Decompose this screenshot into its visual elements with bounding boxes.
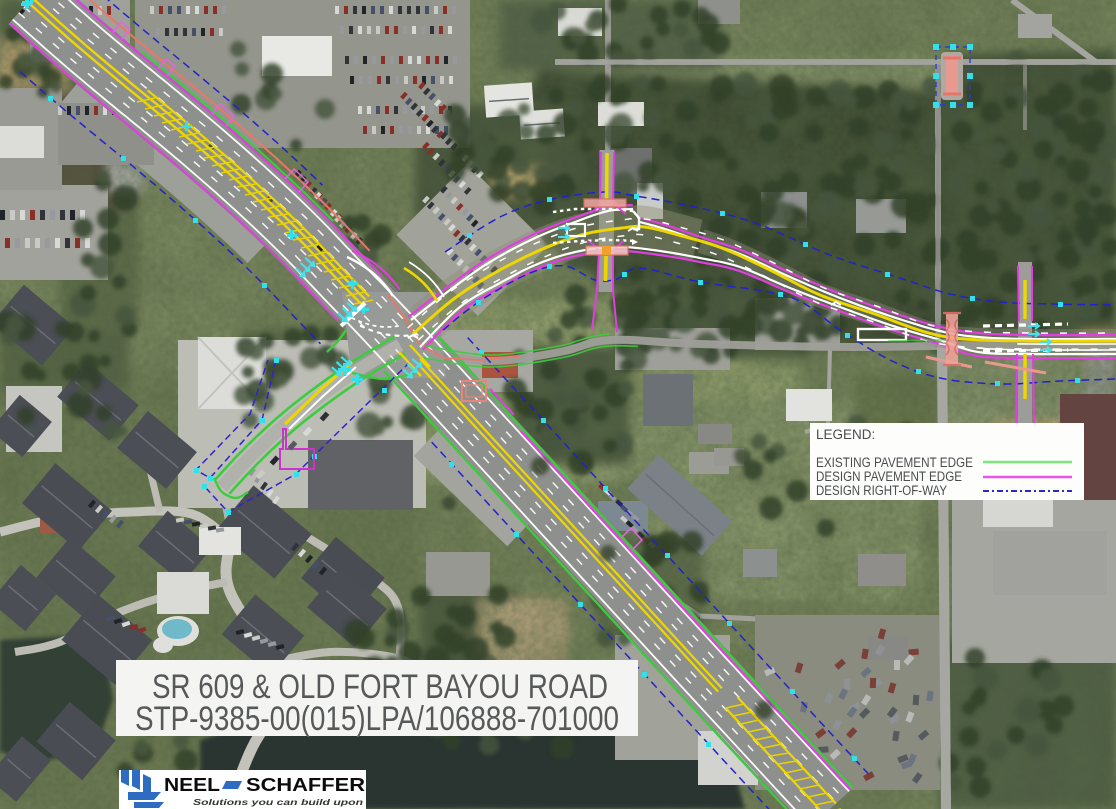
svg-text:NEEL: NEEL [164, 774, 220, 795]
svg-text:STP-9385-00(015)LPA/106888-701: STP-9385-00(015)LPA/106888-701000 [135, 700, 619, 738]
svg-text:DESIGN RIGHT-OF-WAY: DESIGN RIGHT-OF-WAY [816, 483, 947, 498]
svg-text:DESIGN PAVEMENT EDGE: DESIGN PAVEMENT EDGE [816, 469, 962, 484]
svg-text:SCHAFFER: SCHAFFER [246, 774, 365, 795]
svg-text:LEGEND:: LEGEND: [816, 427, 875, 442]
svg-text:EXISTING PAVEMENT EDGE: EXISTING PAVEMENT EDGE [816, 455, 973, 470]
svg-text:Solutions you can build upon: Solutions you can build upon [193, 797, 363, 807]
